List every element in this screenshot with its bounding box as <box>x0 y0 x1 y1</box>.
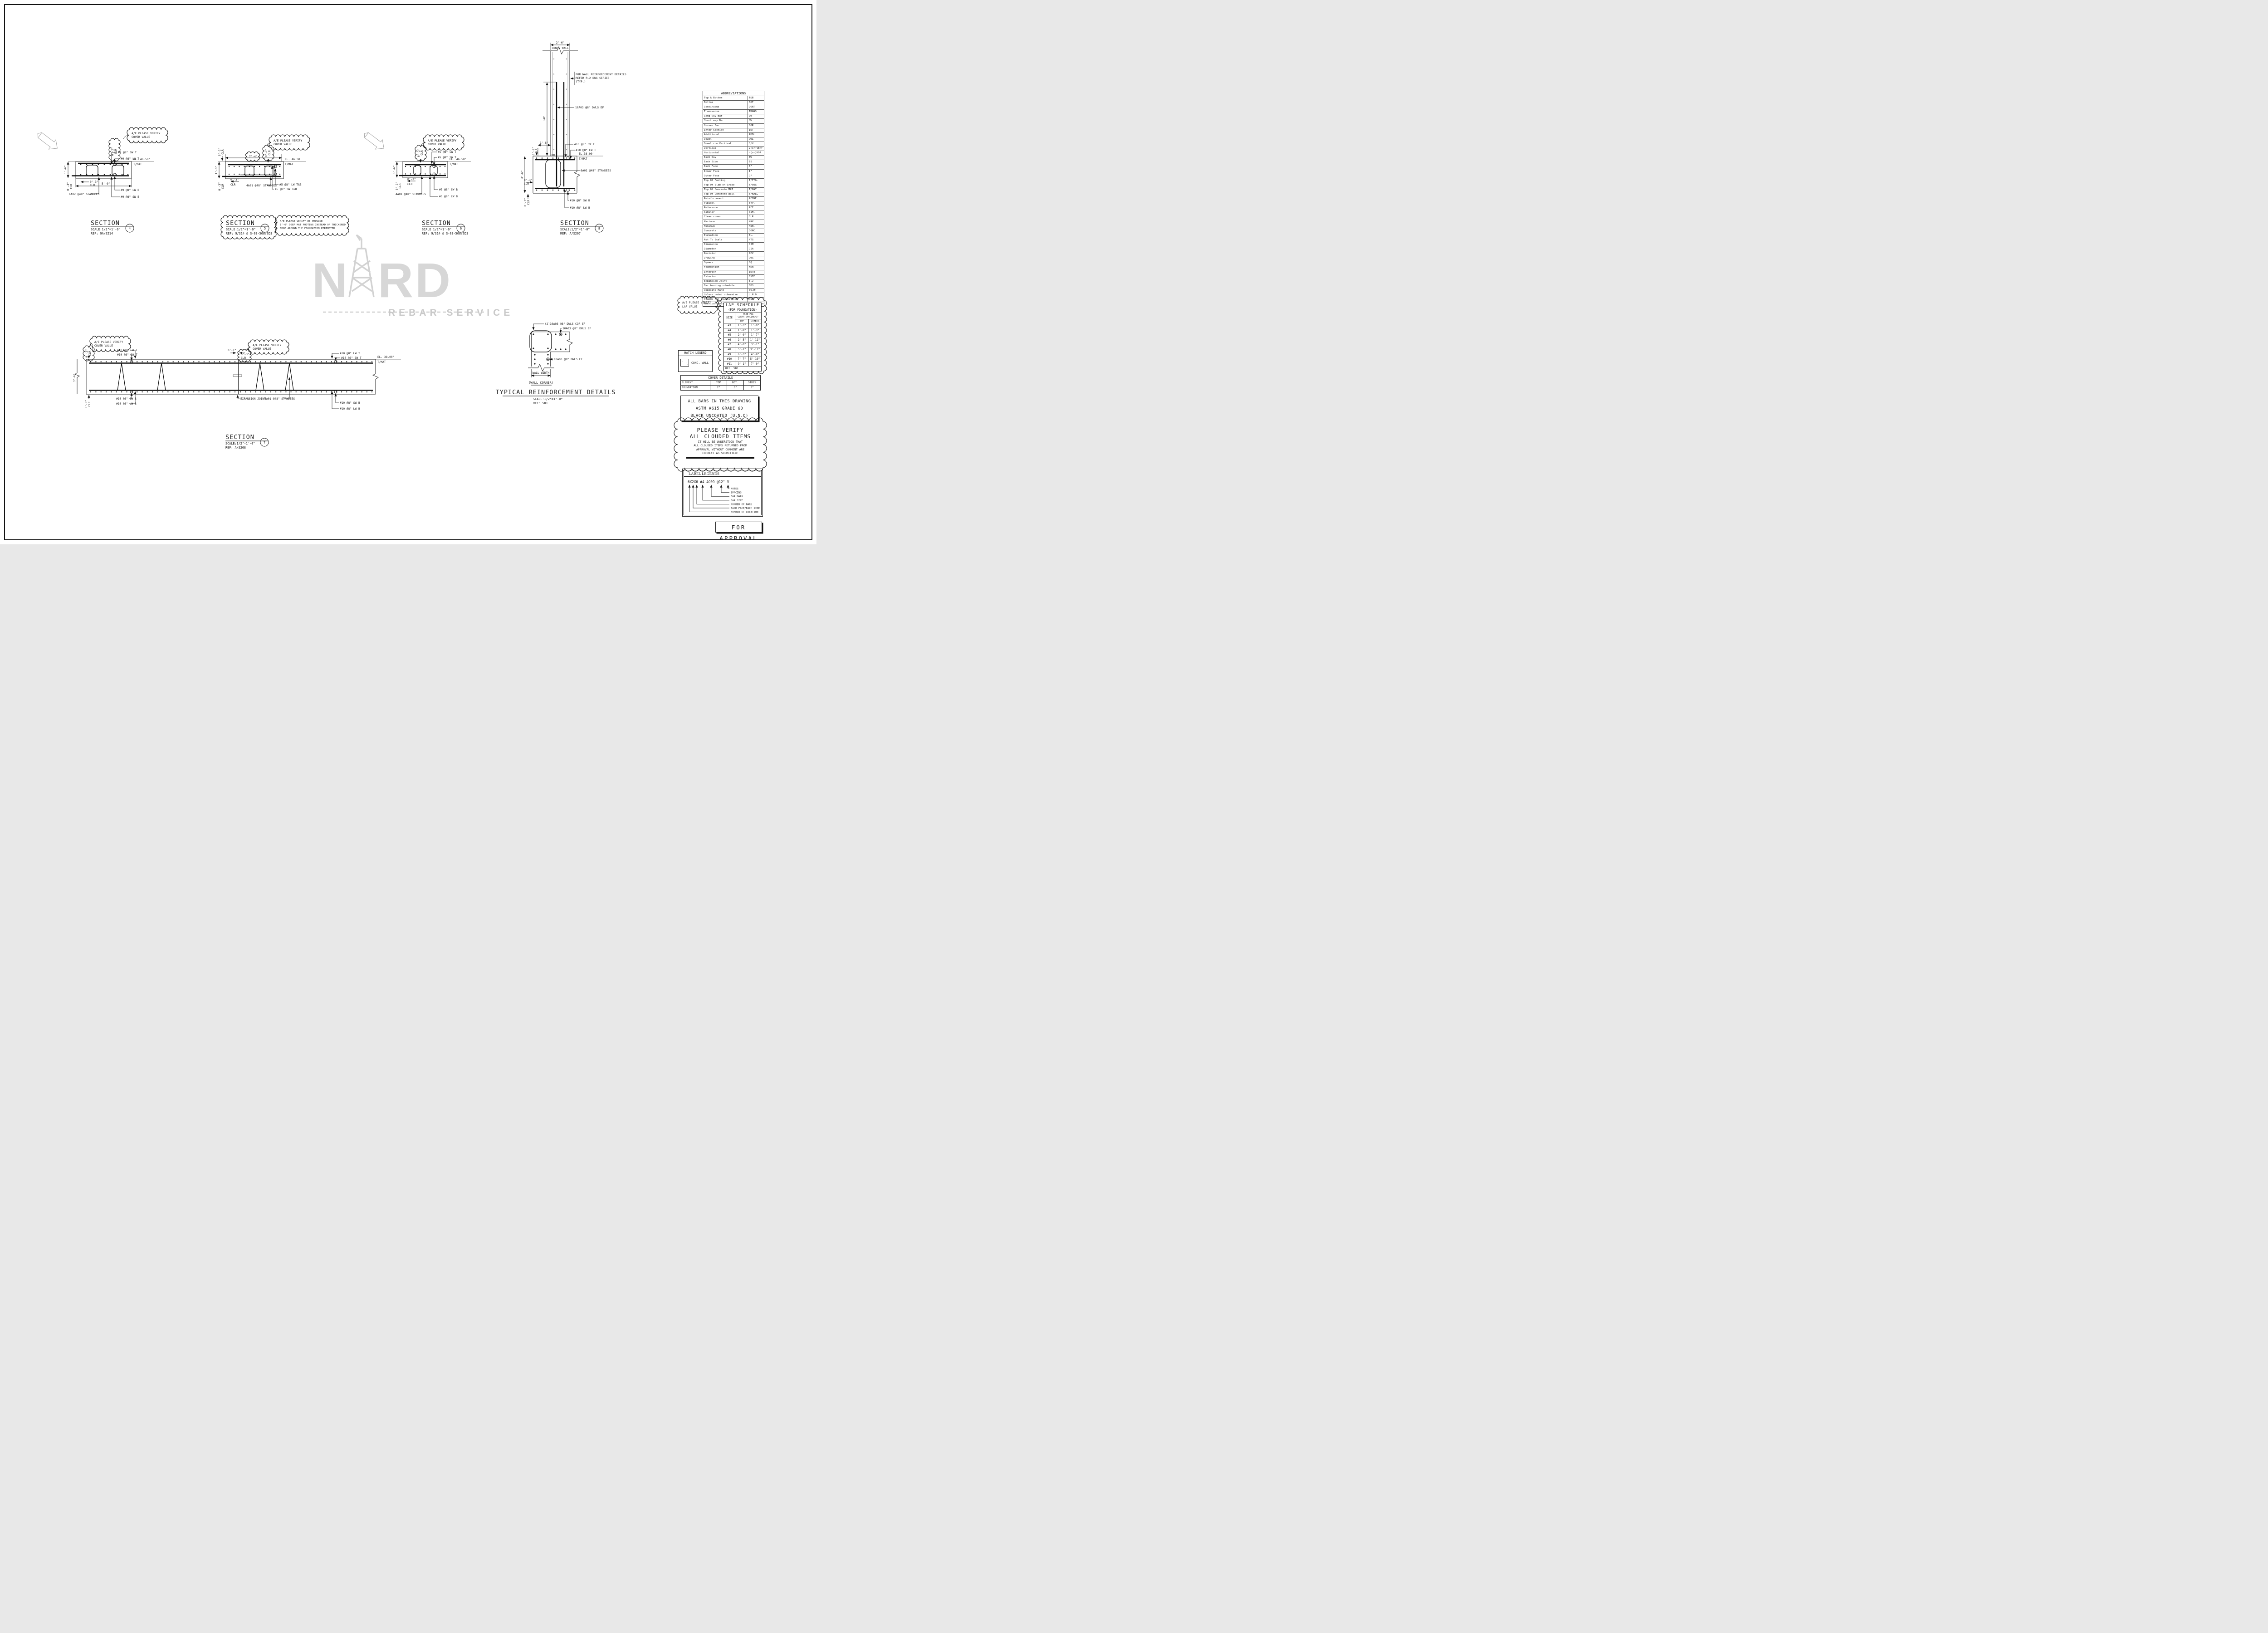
svg-text:4: 4 <box>129 227 131 230</box>
clr-cloud-val: 0'-2" <box>417 149 420 157</box>
el-datum: T/MAT <box>377 361 386 364</box>
svg-text:A/E PLEASE VERIFY WE PROVIDE: A/E PLEASE VERIFY WE PROVIDE <box>280 220 323 223</box>
callout-dwls-ef-mid: 10A03 @8" DWLS EF <box>554 358 583 361</box>
dim-3-6: 3'-6" <box>521 171 524 179</box>
dim-clrb: CLR <box>527 200 530 205</box>
dim-clr2: CLR <box>221 184 225 189</box>
section-7-title: SECTION 7 SCALE:1/2"=1'-0" REF: A/S208 <box>225 434 269 450</box>
verify-cover-2: COVER VALUE <box>94 344 113 347</box>
dim-0-2: 0'-2" <box>218 148 221 156</box>
dim-clr: CLR <box>88 401 91 406</box>
wall-note-3: (TYP.) <box>576 80 586 83</box>
svg-text:SECTION: SECTION <box>226 220 255 227</box>
wall-note-2: REFER R-2 DWG SERIES <box>576 77 610 80</box>
lap-schedule-cloud <box>719 298 767 374</box>
el-value: EL.38.00' <box>579 152 594 156</box>
svg-text:6: 6 <box>460 227 462 230</box>
svg-text:REF: A/S207: REF: A/S207 <box>560 232 581 235</box>
callout-lw-t-left: #10 @8" LW T <box>117 349 137 352</box>
svg-text:SCALE:1/2"=1'-0": SCALE:1/2"=1'-0" <box>560 228 590 231</box>
svg-text:SCALE:1/2"=1'-0": SCALE:1/2"=1'-0" <box>91 228 120 231</box>
clr-0-3-val: 0'-3" <box>241 353 249 356</box>
verify-cover-1: A/E PLEASE VERIFY <box>132 132 161 135</box>
svg-text:SECTION: SECTION <box>91 220 120 227</box>
callout-lw-b: #10 @8" LW B <box>570 206 590 210</box>
dim-7-4: 7'-4" <box>249 155 258 158</box>
svg-text:1'-6" DEEP MAT FOOTING INSTEAD: 1'-6" DEEP MAT FOOTING INSTEAD OF THICKE… <box>280 224 346 226</box>
svg-text:SECTION: SECTION <box>560 220 589 227</box>
el-value: EL. 46.50' <box>450 158 466 161</box>
dim-5-0: 5'-0" <box>102 182 110 186</box>
clr-cloud-lbl: CLR <box>420 150 424 155</box>
drawing-geometry: 1'-6" 0'-3" CLR 0'-3" CLR 5'-0" 0'-2" CL… <box>0 0 816 544</box>
section-8-title: SECTION 8 SCALE:1/2"=1'-0" REF: A/S207 <box>560 220 603 235</box>
dim-clr: CLR <box>70 184 73 189</box>
svg-text:EDGE AROUND THE FOUNDATION PER: EDGE AROUND THE FOUNDATION PERIMETER <box>280 227 335 230</box>
callout-cor-dwls: (2)10A03 @8" DWLS COR EF <box>545 323 586 326</box>
callout-standees: 6A01 @48" STANDEES <box>581 169 611 172</box>
el-value: EL. 46.50' <box>133 158 150 161</box>
clr-cloud-val: 0'-2" <box>85 349 88 358</box>
callout-sw-b: #9 @8" SW B <box>121 196 139 199</box>
el-value: EL. 46.50' <box>285 158 302 161</box>
clr-0-3-lbl: CLR <box>241 357 246 360</box>
dim-clrb: CLR <box>407 183 412 186</box>
callout-lw-b-left: #10 @8" LW B <box>116 402 137 406</box>
svg-text:SCALE:1/2"=1'-0": SCALE:1/2"=1'-0" <box>225 442 255 445</box>
svg-text:7: 7 <box>264 441 265 445</box>
section-5-detail: 7'-4" 0'-2" CLR 0'-2" CLR A/E PLEASE VER… <box>215 135 349 239</box>
lap-value-2: LAP VALUE <box>682 305 698 308</box>
svg-text:REF: 9/S14 & S-03-508/SD3: REF: 9/S14 & S-03-508/SD3 <box>226 232 272 235</box>
dim-0-3: 0'-3" <box>67 182 70 191</box>
callout-sw-b-right: #10 @8" SW B <box>340 401 360 405</box>
svg-text:SECTION: SECTION <box>422 220 451 227</box>
callout-lw-t: #10 @8" LW T <box>576 149 596 152</box>
dim-2-6: 2'-6" <box>556 41 565 44</box>
section-6-detail: 0'-2" CLR A/E PLEASE VERIFY COVER VALUE … <box>361 129 471 235</box>
clr-cloud-lbl: CLR <box>268 150 271 155</box>
typical-reinf-scale: SCALE:1/2"=1'-0" <box>533 397 562 401</box>
lap-value-1: A/E PLEASE VERIFY <box>682 301 711 304</box>
verify-cover-2: COVER VALUE <box>274 143 292 146</box>
svg-text:REF: 9A/S214: REF: 9A/S214 <box>91 232 113 235</box>
callout-sw-t-right: #10 @8" SW T <box>341 357 362 360</box>
dim-0-3: 0'-3" <box>524 179 533 182</box>
verify-cover-1: A/E PLEASE VERIFY <box>274 139 303 142</box>
verify-cover-2: COVER VALUE <box>428 143 446 146</box>
callout-lw-t: #5 @8" LW T <box>438 151 456 154</box>
el-datum: T/MAT <box>133 163 142 166</box>
svg-text:REF: 9/S14 & S-03-508/SD3: REF: 9/S14 & S-03-508/SD3 <box>422 232 468 235</box>
dim-0-3b: 0'-3" <box>230 178 239 181</box>
clr-cloud-lbl: CLR <box>114 149 117 154</box>
dwls-callout: 10A03 @8" DWLS EF <box>575 106 604 109</box>
drawing-sheet: N RD REBAR SERVICE <box>0 0 816 544</box>
dim-clr2: CLR <box>524 182 529 186</box>
dim-0-3b: 0'-3" <box>524 198 527 207</box>
svg-text:5: 5 <box>264 227 266 230</box>
dim-0-3b: 0'-3" <box>407 178 416 181</box>
verify-cover-2: COVER VALUE <box>132 136 150 139</box>
el-datum: T/MAT <box>285 163 293 166</box>
callout-sw-b: #5 @8" SW B <box>439 188 458 191</box>
svg-text:SECTION: SECTION <box>225 434 254 441</box>
clr-cloud-val: 0'-2" <box>265 149 268 157</box>
dim-3-6: 3'-6" <box>73 374 76 382</box>
dim-0-2: 0'-2" <box>532 147 535 156</box>
section-5-note-cloud: A/E PLEASE VERIFY WE PROVIDE 1'-6" DEEP … <box>275 215 349 235</box>
section-4-title: SECTION 4 SCALE:1/2"=1'-0" REF: 9A/S214 <box>91 220 134 235</box>
verify-cover-1: A/E PLEASE VERIFY <box>94 341 123 344</box>
lap-value-cloud <box>678 296 718 313</box>
verify-items-cloud <box>674 418 767 471</box>
dim-1-6: 1'-6" <box>540 142 548 145</box>
dim-0-3b: 0'-3" <box>90 181 98 184</box>
dim-0-1: 0'-1" <box>228 349 236 352</box>
callout-sw-t: #9 @8" SW T <box>118 151 137 154</box>
dim-0-3: 0'-3" <box>218 182 221 191</box>
callout-lw-b: #9 @8" LW B <box>121 189 139 192</box>
callout-sw-b-left: #10 @8" SW B <box>116 397 137 401</box>
section-5-title: SECTION 5 SCALE:1/2"=1'-0" REF: 9/S14 & … <box>221 215 276 239</box>
expansion-joint-label: EXPANSION JOINT <box>240 397 266 401</box>
el-datum: T/MAT <box>450 163 458 166</box>
section-8-detail: 2'-6" CONC. WALL LAP FOR WALL REINFORCEM… <box>521 41 626 235</box>
typical-reinf-ref: REF: SD1 <box>533 401 548 405</box>
callout-lw-tb: #5 @8" LW T&B <box>279 183 302 186</box>
verify-cover-1m: A/E PLEASE VERIFY <box>253 344 282 347</box>
callout-sw-b: #10 @8" SW B <box>570 199 590 202</box>
verify-cover-2m: COVER VALUE <box>253 347 271 351</box>
el-value: EL. 38.00' <box>377 356 394 359</box>
wall-corner-detail: (2)10A03 @8" DWLS COR EF 10A03 @8" DWLS … <box>496 323 616 405</box>
svg-text:8: 8 <box>598 227 600 230</box>
callout-standees: 6A02 @48" STANDEES <box>69 193 99 196</box>
dim-clr: CLR <box>399 183 402 188</box>
section-4-detail: 1'-6" 0'-3" CLR 0'-3" CLR 5'-0" 0'-2" CL… <box>34 127 168 235</box>
dim-1-6: 1'-6" <box>393 166 396 174</box>
callout-sw-tb: #5 @8" SW T&B <box>275 188 297 191</box>
callout-sw-t-left: #10 @8" SW T <box>117 353 137 357</box>
callout-lw-b: #5 @8" LW B <box>439 195 458 198</box>
dim-0-3: 0'-3" <box>85 400 88 409</box>
el-datum: T/MAT <box>579 157 587 161</box>
wall-corner-label: (WALL CORNER) <box>528 381 553 385</box>
break-arrow-icon <box>361 129 387 153</box>
callout-lw-t-right: #10 @8" LW T <box>340 352 360 355</box>
dim-1-6: 1'-6" <box>64 166 67 174</box>
callout-dwls-ef-top: 10A03 @8" DWLS EF <box>562 327 591 330</box>
section-7-detail: A/E PLEASE VERIFY COVER VALUE 0'-2" CLR … <box>73 336 401 450</box>
svg-text:SCALE:1/2"=1'-0": SCALE:1/2"=1'-0" <box>226 228 255 231</box>
clr-cloud-lbl: CLR <box>88 351 92 356</box>
dim-clr: CLR <box>221 149 225 154</box>
conc-wall-label: CONC. WALL <box>552 47 569 50</box>
verify-cover-1: A/E PLEASE VERIFY <box>428 139 457 142</box>
dim-clr: CLR <box>535 148 538 153</box>
callout-standees: 6A01 @48" STANDEES <box>264 397 295 401</box>
dim-1-6: 1'-6" <box>215 166 218 175</box>
break-arrow-icon <box>34 129 61 153</box>
svg-text:SCALE:1/2"=1'-0": SCALE:1/2"=1'-0" <box>422 228 451 231</box>
dim-0-3: 0'-3" <box>396 182 399 191</box>
callout-standees: 4A01 @48" STANDEES <box>396 193 426 196</box>
callout-sw-t: #10 @8" SW T <box>574 143 595 146</box>
lap-dim: LAP <box>543 116 546 121</box>
wall-note-1: FOR WALL REINFORCEMENT DETAILS <box>576 73 626 76</box>
dim-clrb: CLR <box>230 183 235 186</box>
dim-clrb: CLR <box>90 184 95 187</box>
wall-width-dim: WALL WIDTH <box>533 372 550 375</box>
svg-text:REF: A/S208: REF: A/S208 <box>225 446 246 450</box>
callout-lw-b-right: #10 @8" LW B <box>340 407 360 411</box>
typical-reinf-title: TYPICAL REINFORCEMENT DETAILS <box>496 389 616 396</box>
section-6-title: SECTION 6 SCALE:1/2"=1'-0" REF: 9/S14 & … <box>422 220 468 235</box>
